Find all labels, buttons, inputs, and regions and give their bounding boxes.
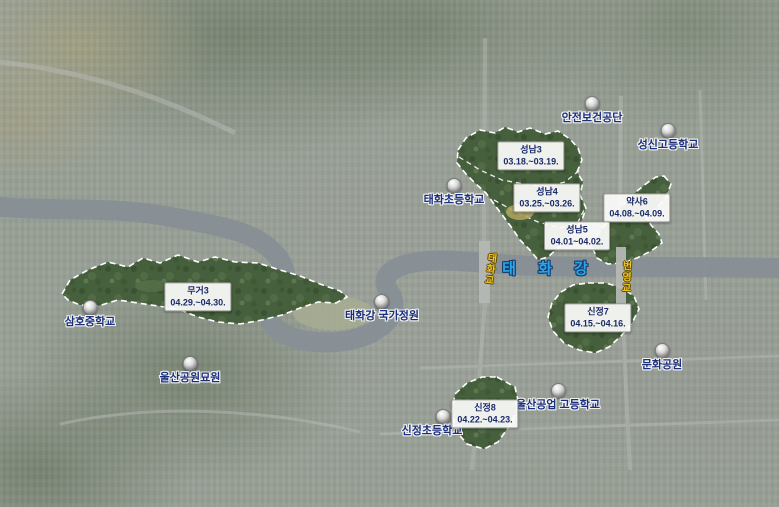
area-label-seongnam4: 성남4 03.25.~03.26. <box>513 183 580 212</box>
area-dates: 04.08.~04.09. <box>609 208 664 220</box>
area-name: 무거3 <box>170 285 225 297</box>
poi-marker-icon[interactable] <box>446 178 461 193</box>
poi-marker-icon[interactable] <box>435 409 450 424</box>
poi-label: 울산공업 고등학교 <box>516 399 600 412</box>
poi-label: 울산공원묘원 <box>160 372 221 385</box>
poi-marker-icon[interactable] <box>550 383 565 398</box>
map-canvas[interactable]: 태 화 강 태화교 번영교 안전보건공단 성신고등학교 태화초등학교 삼호중학교… <box>0 0 779 507</box>
area-dates: 04.29.~04.30. <box>170 297 225 309</box>
poi-samho-middle-school: 삼호중학교 <box>65 300 116 329</box>
poi-ulsan-cemetery-park: 울산공원묘원 <box>160 356 221 385</box>
area-name: 신정7 <box>570 306 625 318</box>
poi-marker-icon[interactable] <box>182 356 197 371</box>
area-dates: 03.18.~03.19. <box>503 156 558 168</box>
bridge-label-right: 번영교 <box>617 260 634 294</box>
poi-label: 태화강 국가정원 <box>345 310 419 323</box>
poi-culture-park: 문화공원 <box>642 343 682 372</box>
area-name: 약사6 <box>609 196 664 208</box>
poi-taehwagang-garden: 태화강 국가정원 <box>345 294 419 323</box>
area-dates: 04.01~04.02. <box>550 236 604 248</box>
area-label-sinjeong8: 신정8 04.22.~04.23. <box>451 399 518 428</box>
area-name: 성남4 <box>519 186 574 198</box>
poi-label: 태화초등학교 <box>424 194 485 207</box>
area-label-yaksa6: 약사6 04.08.~04.09. <box>603 193 670 222</box>
area-name: 성남5 <box>550 224 604 236</box>
area-label-seongnam3: 성남3 03.18.~03.19. <box>497 141 564 170</box>
poi-marker-icon[interactable] <box>584 96 599 111</box>
area-dates: 04.15.~04.16. <box>570 318 625 330</box>
river-label: 태 화 강 <box>493 258 597 279</box>
poi-marker-icon[interactable] <box>654 343 669 358</box>
map-overlay <box>0 0 779 507</box>
area-dates: 04.22.~04.23. <box>457 414 512 426</box>
area-name: 성남3 <box>503 144 558 156</box>
poi-marker-icon[interactable] <box>82 300 97 315</box>
poi-taehwa-elementary: 태화초등학교 <box>424 178 485 207</box>
poi-label: 안전보건공단 <box>562 112 623 125</box>
poi-marker-icon[interactable] <box>660 123 675 138</box>
area-label-sinjeong7: 신정7 04.15.~04.16. <box>564 303 631 332</box>
area-label-mugeo3: 무거3 04.29.~04.30. <box>164 282 231 311</box>
poi-marker-icon[interactable] <box>375 294 390 309</box>
poi-safety-agency: 안전보건공단 <box>562 96 623 125</box>
area-dates: 03.25.~03.26. <box>519 198 574 210</box>
poi-label: 삼호중학교 <box>65 316 116 329</box>
area-name: 신정8 <box>457 402 512 414</box>
roads-layer <box>0 38 779 470</box>
poi-ulsan-technical-high-school: 울산공업 고등학교 <box>516 383 600 412</box>
poi-label: 문화공원 <box>642 359 682 372</box>
area-label-seongnam5: 성남5 04.01~04.02. <box>544 221 610 250</box>
poi-seongshin-high-school: 성신고등학교 <box>638 123 699 152</box>
poi-label: 성신고등학교 <box>638 139 699 152</box>
